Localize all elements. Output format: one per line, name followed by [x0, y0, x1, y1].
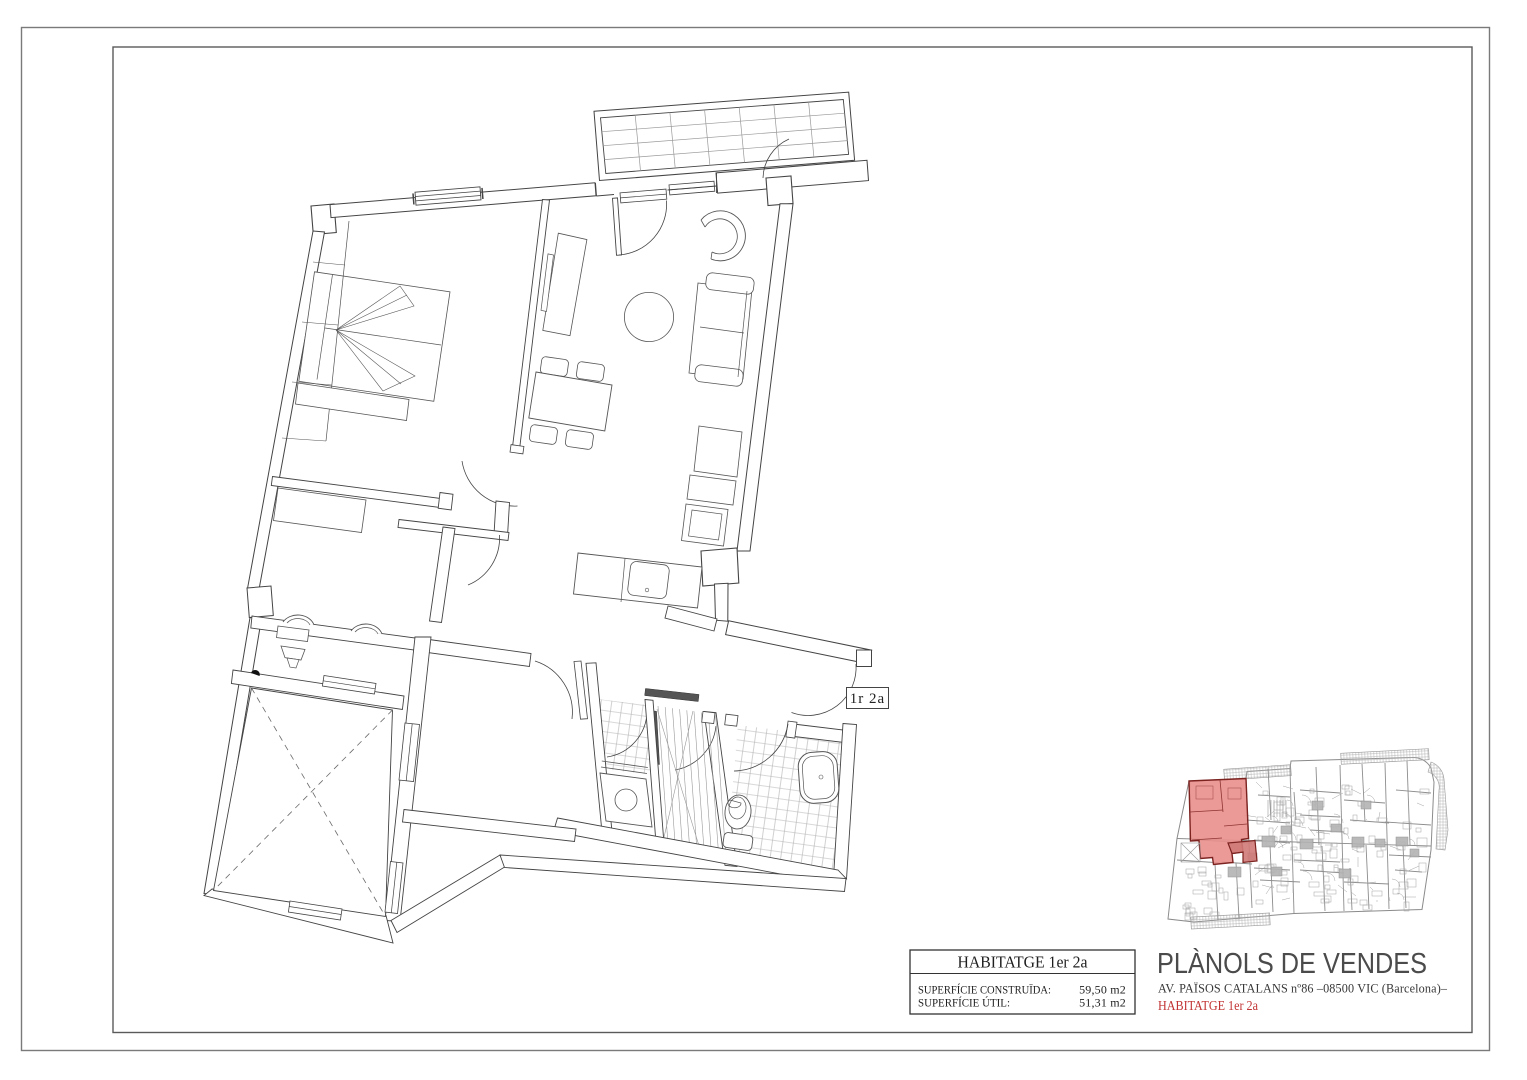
- svg-text:SUPERFÍCIE CONSTRUÏDA:: SUPERFÍCIE CONSTRUÏDA:: [918, 983, 1051, 997]
- svg-text:51,31 m2: 51,31 m2: [1079, 996, 1126, 1010]
- svg-text:AV. PAÏSOS CATALANS nº86 –0850: AV. PAÏSOS CATALANS nº86 –08500 VIC (Bar…: [1158, 982, 1448, 996]
- svg-text:SUPERFÍCIE ÚTIL:: SUPERFÍCIE ÚTIL:: [918, 996, 1010, 1010]
- svg-text:59,50 m2: 59,50 m2: [1079, 983, 1126, 997]
- svg-text:HABITATGE 1er 2a: HABITATGE 1er 2a: [1158, 998, 1258, 1013]
- svg-text:PLÀNOLS DE VENDES: PLÀNOLS DE VENDES: [1157, 947, 1427, 980]
- svg-text:HABITATGE 1er 2a: HABITATGE 1er 2a: [958, 953, 1089, 972]
- svg-text:1r 2a: 1r 2a: [850, 691, 885, 707]
